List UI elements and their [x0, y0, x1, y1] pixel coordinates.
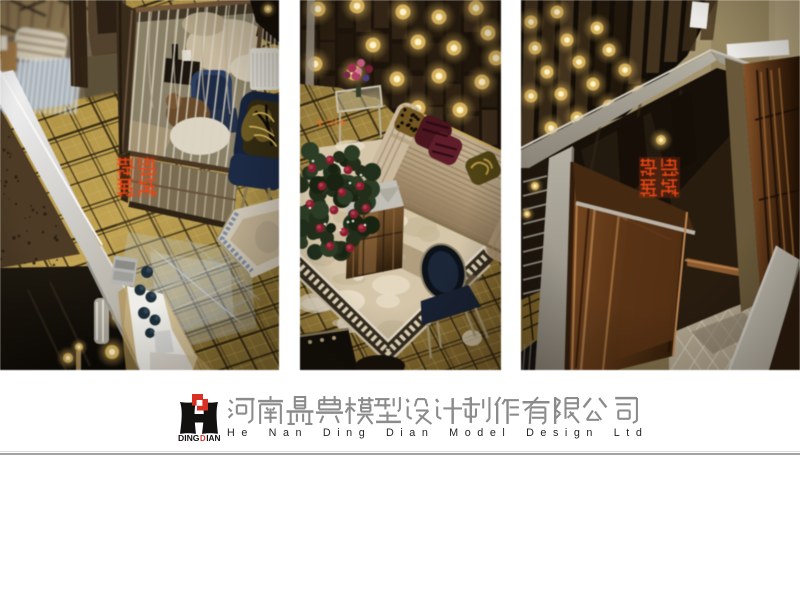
- svg-text:IAN: IAN: [206, 433, 220, 443]
- svg-text:D: D: [200, 433, 206, 443]
- svg-text:DING: DING: [178, 433, 200, 443]
